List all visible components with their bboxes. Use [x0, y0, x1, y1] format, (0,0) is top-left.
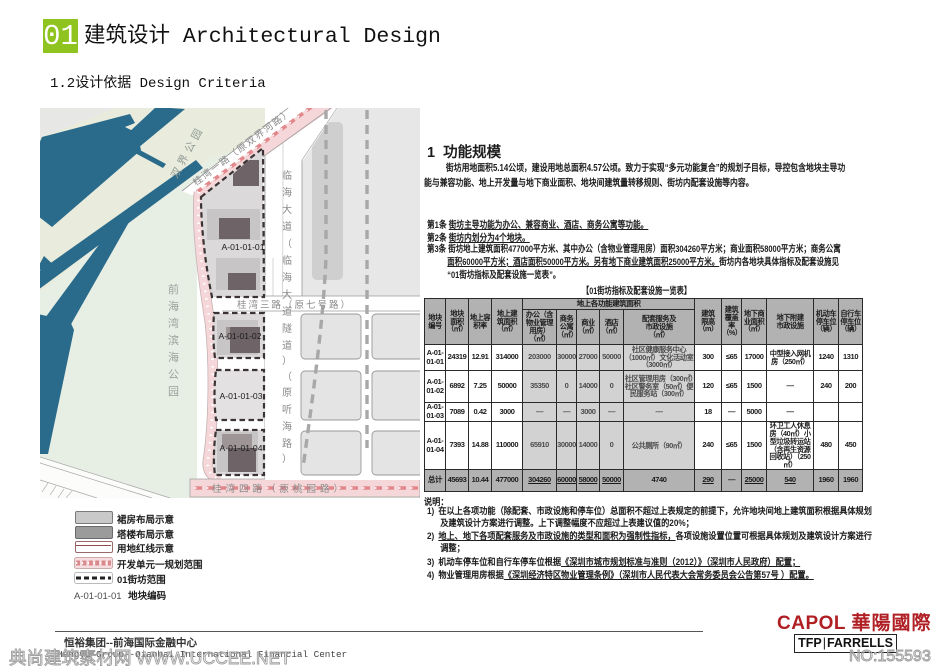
- svg-text:A-01-01-03: A-01-01-03: [220, 391, 263, 401]
- svg-text:桂湾四路（原桃园路）: 桂湾四路（原桃园路）: [212, 483, 347, 495]
- svg-text:A-01-01-01: A-01-01-01: [222, 242, 265, 252]
- svg-text:A-01-01-02: A-01-01-02: [219, 331, 262, 341]
- svg-text:A-01-01-04: A-01-01-04: [220, 443, 263, 453]
- svg-text:桂湾三路（原七号路）: 桂湾三路（原七号路）: [237, 299, 352, 311]
